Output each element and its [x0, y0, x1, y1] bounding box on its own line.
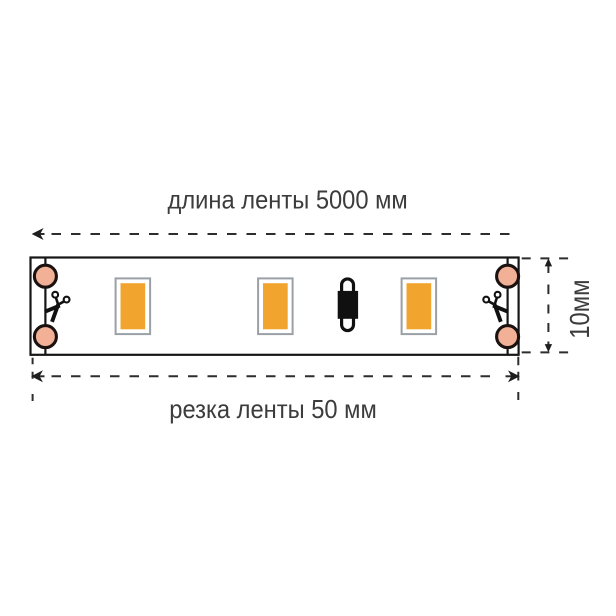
- svg-text:длина ленты 5000 мм: длина ленты 5000 мм: [167, 187, 407, 215]
- svg-text:10мм: 10мм: [563, 280, 595, 339]
- svg-text:резка ленты 50 мм: резка ленты 50 мм: [169, 396, 376, 424]
